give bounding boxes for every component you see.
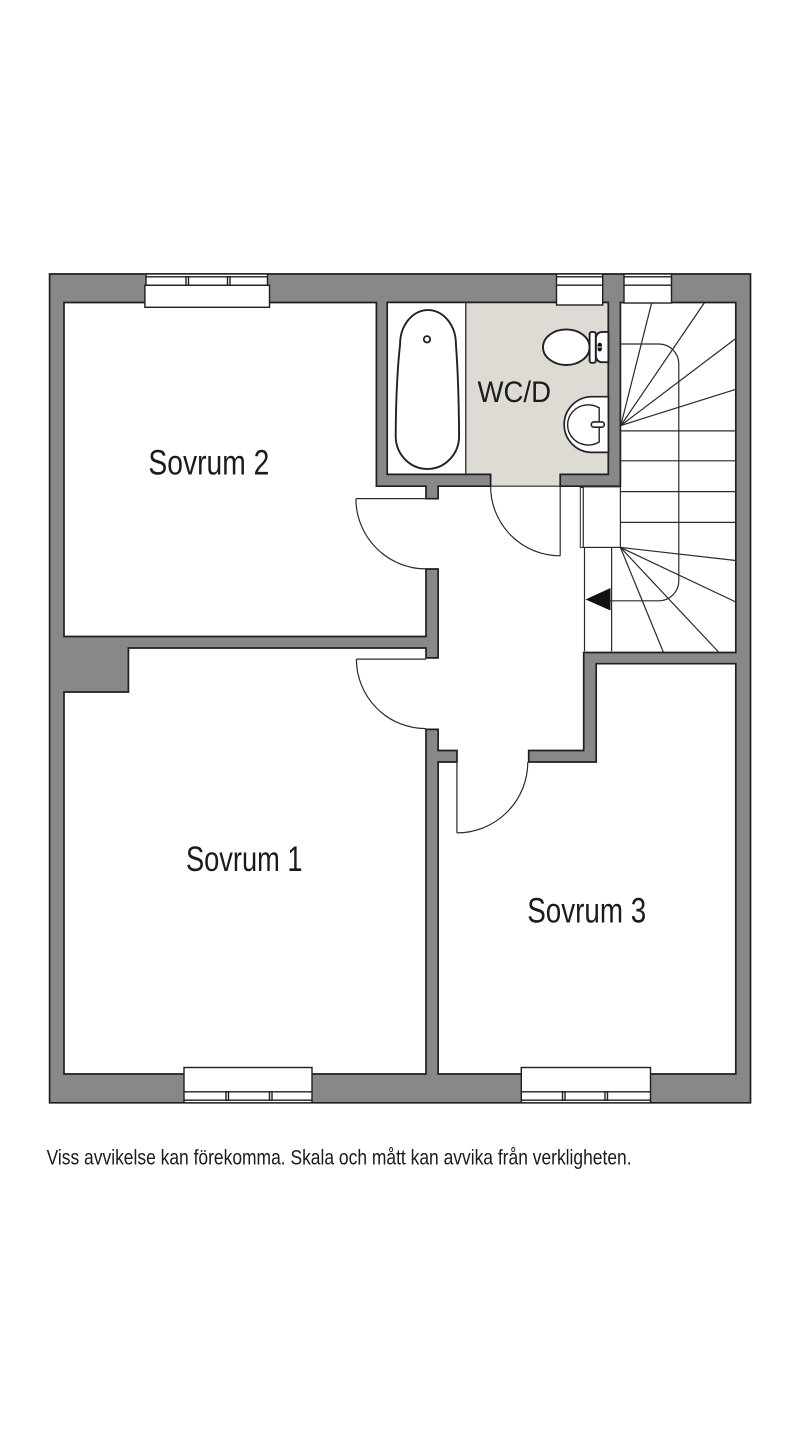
svg-text:Sovrum 3: Sovrum 3 — [527, 892, 646, 931]
svg-text:WC/D: WC/D — [478, 376, 552, 409]
svg-text:Viss avvikelse kan förekomma.: Viss avvikelse kan förekomma. Skala och … — [47, 1147, 632, 1170]
svg-text:Sovrum 2: Sovrum 2 — [148, 444, 269, 483]
svg-text:Sovrum 1: Sovrum 1 — [186, 840, 303, 879]
